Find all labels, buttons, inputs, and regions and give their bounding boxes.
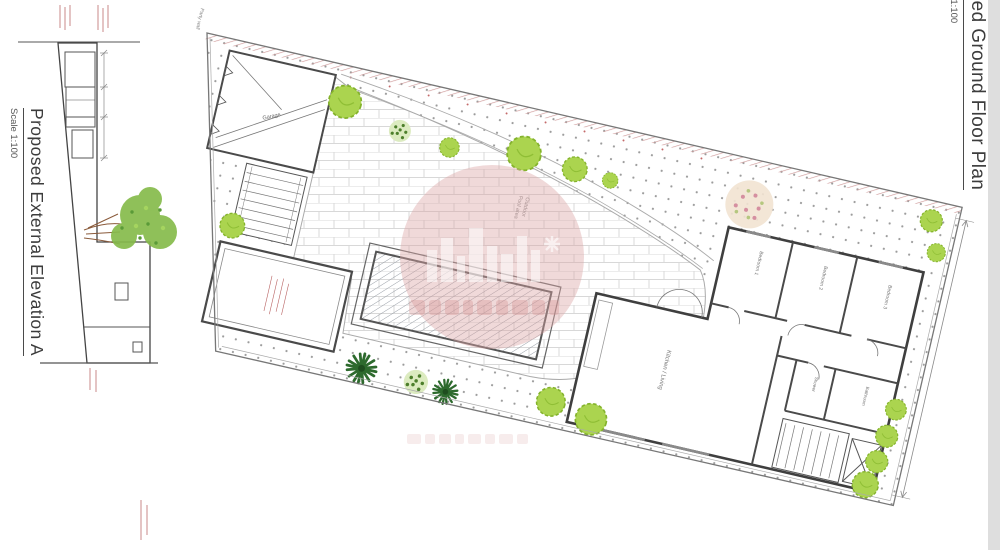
left-title-block: Proposed External Elevation A Scale 1:10… — [8, 108, 47, 356]
right-title-block: Proposed Ground Floor Plan Scale 1:100 — [948, 0, 988, 190]
left-title-text: Proposed External Elevation A — [23, 108, 47, 356]
page-edge-shadow — [988, 0, 1000, 550]
party-wall-label: Party wall — [194, 8, 205, 30]
left-scale-text: Scale 1:100 — [8, 108, 19, 356]
site-rotated-group: Garage — [138, 33, 977, 511]
right-title-text: Proposed Ground Floor Plan — [963, 0, 988, 190]
drawing-sheet: Party wall — [0, 0, 1000, 550]
right-scale-text: Scale 1:100 — [948, 0, 959, 190]
ground-floor-plan: Party wall — [0, 0, 1000, 550]
